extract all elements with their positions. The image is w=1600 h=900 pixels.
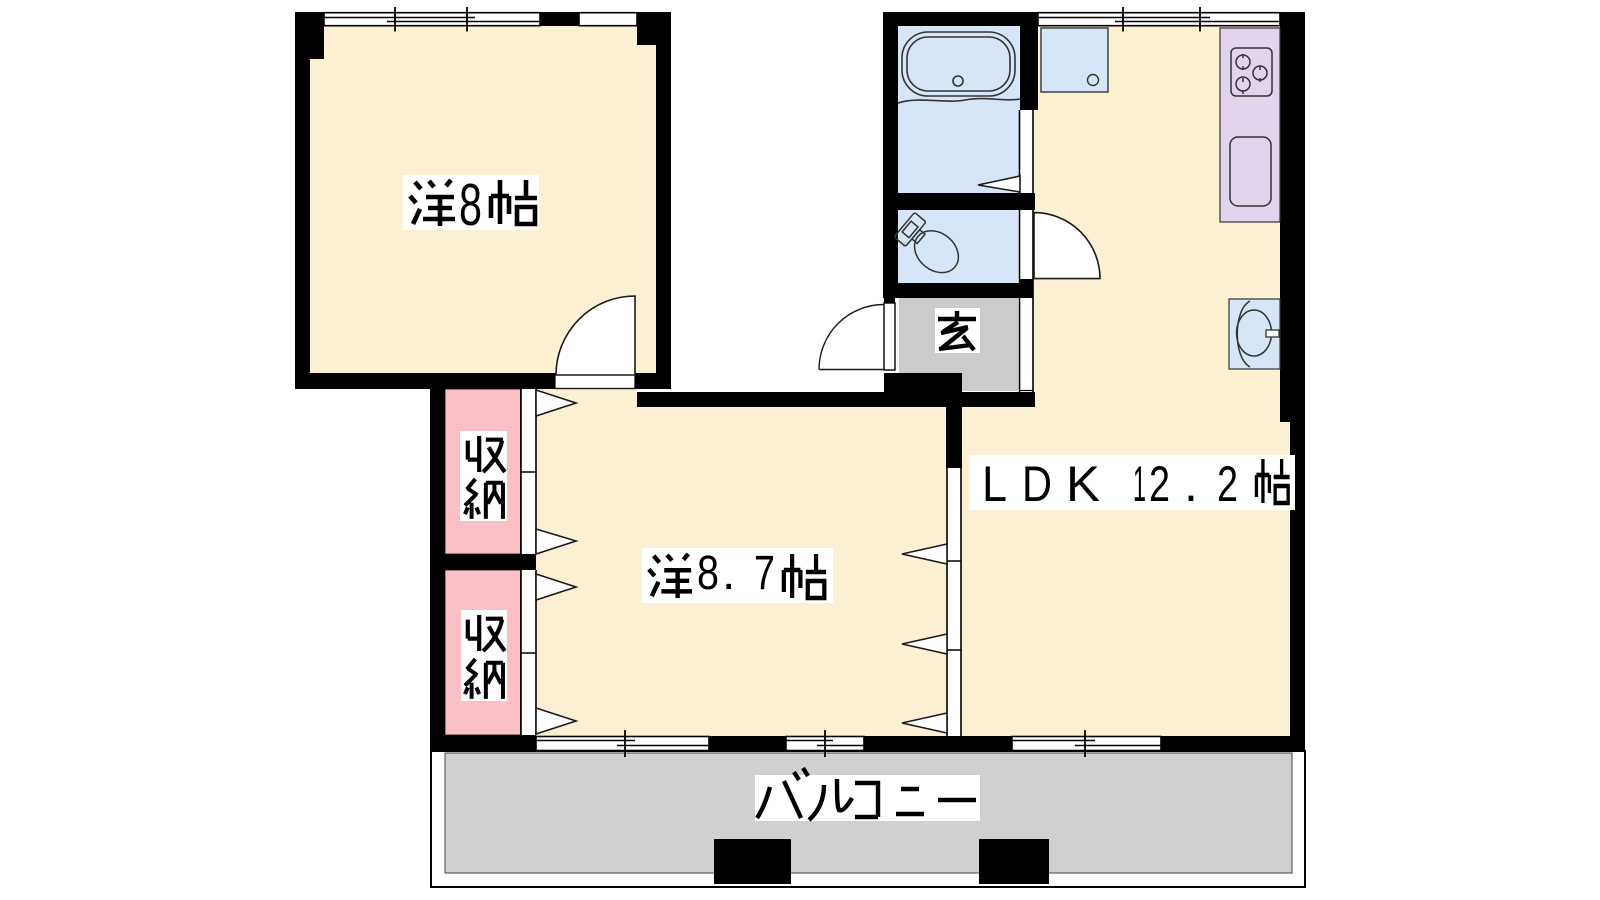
svg-text:8: 8 xyxy=(697,547,719,600)
svg-text:.: . xyxy=(722,547,735,600)
svg-text:7: 7 xyxy=(754,547,775,600)
svg-text:L: L xyxy=(982,456,1007,512)
svg-text:.: . xyxy=(1184,456,1198,512)
svg-text:2: 2 xyxy=(1217,456,1238,512)
svg-text:K: K xyxy=(1066,456,1100,512)
svg-text:2: 2 xyxy=(1149,456,1170,512)
svg-text:8: 8 xyxy=(459,172,482,238)
svg-text:D: D xyxy=(1022,456,1052,512)
svg-text:1: 1 xyxy=(1133,456,1146,512)
